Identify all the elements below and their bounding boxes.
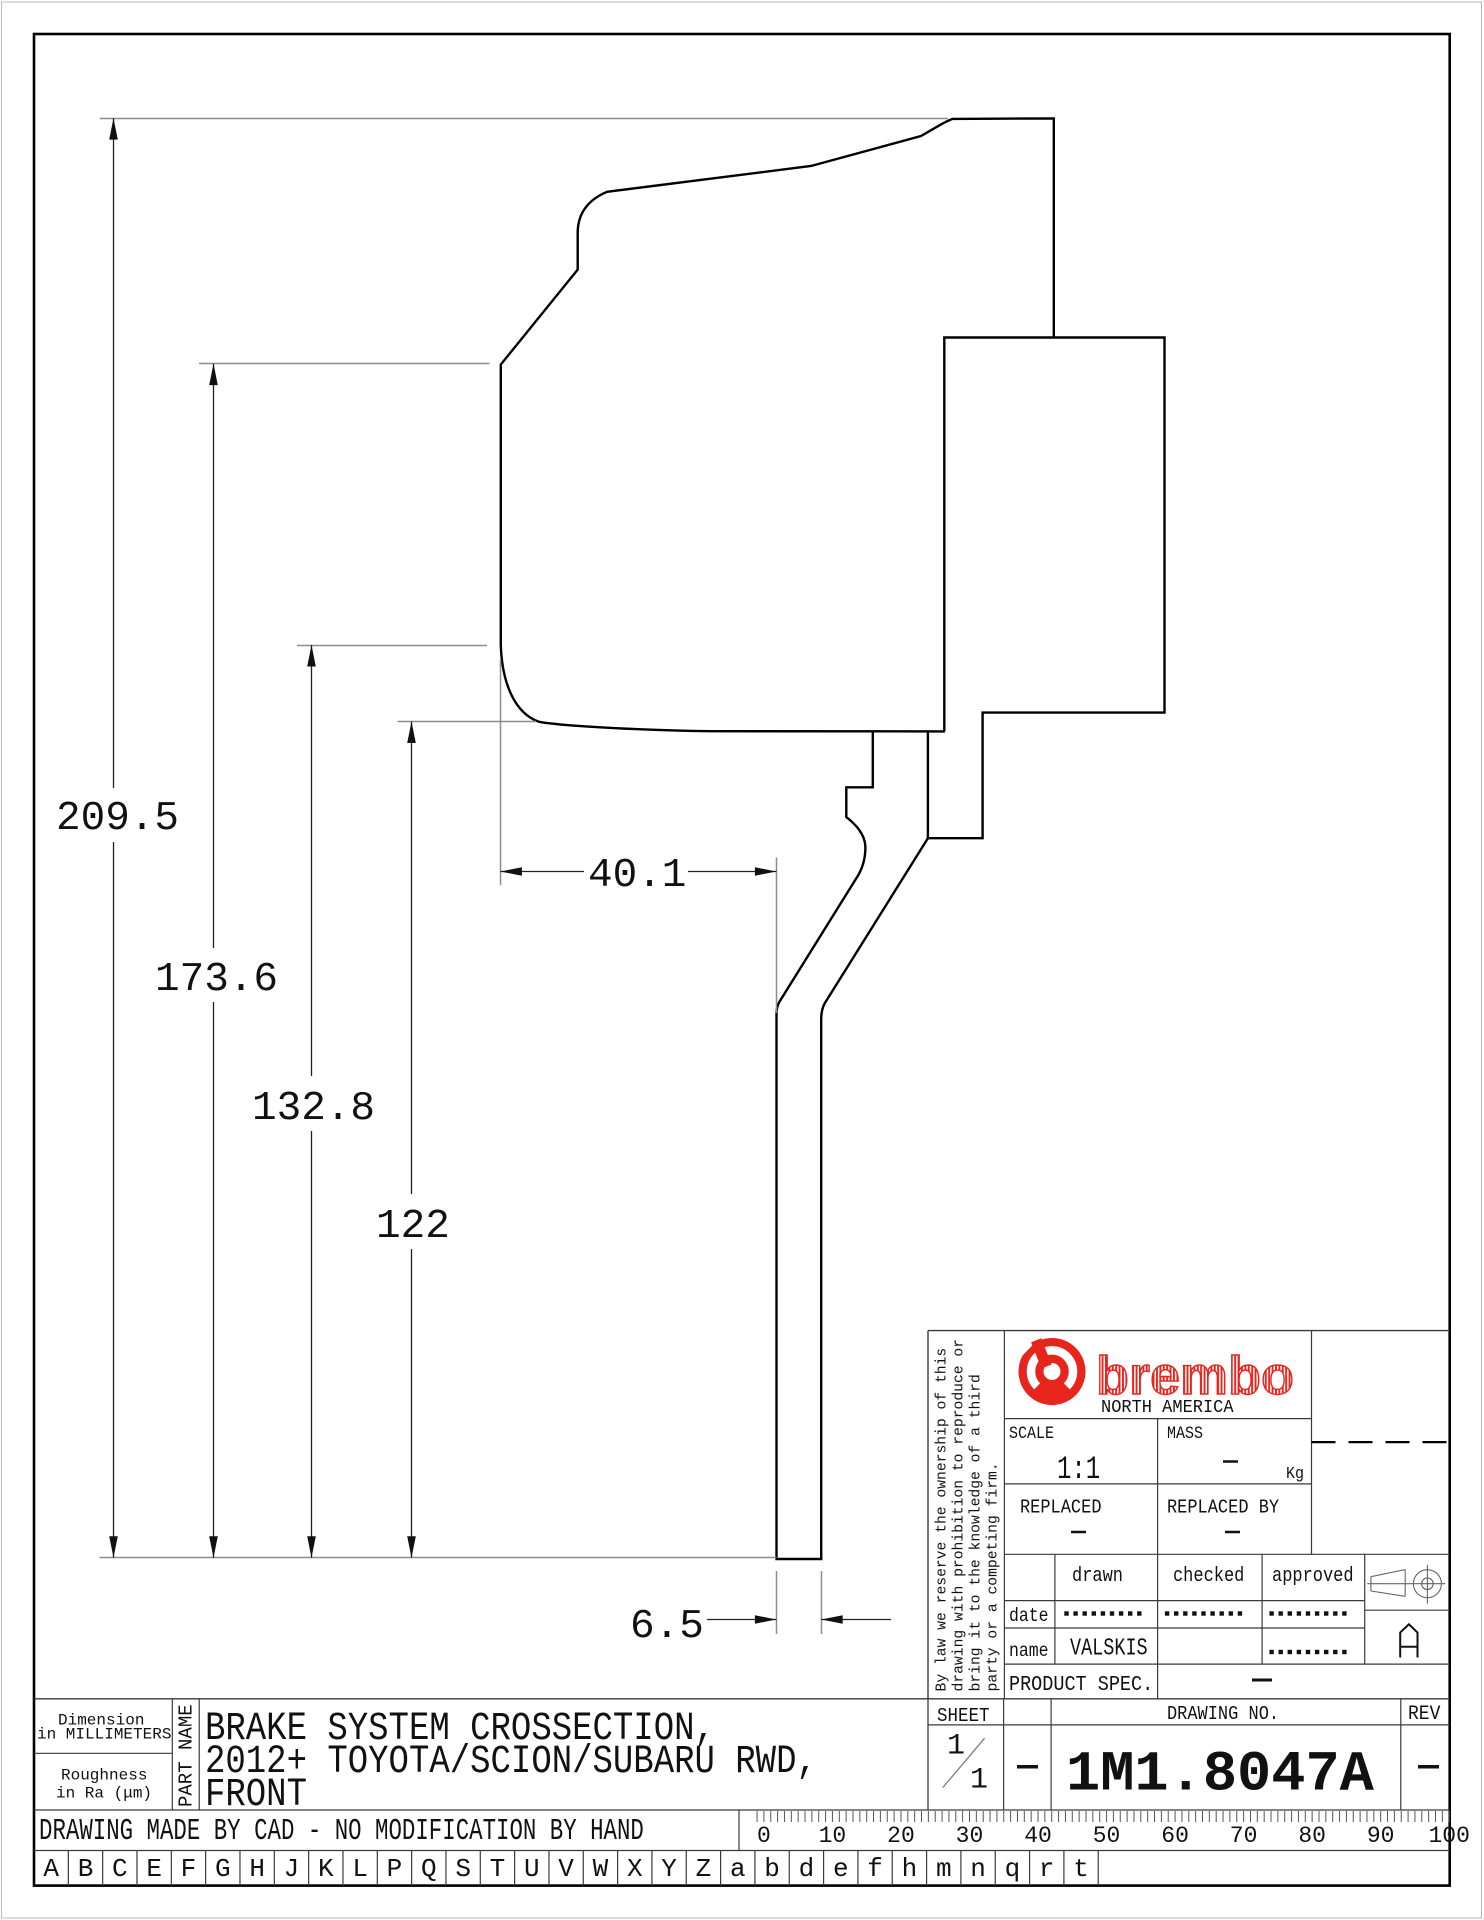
svg-text:90: 90 [1367,1823,1395,1849]
svg-text:bring it to the knowledge of a: bring it to the knowledge of a third [969,1374,985,1691]
svg-text:V: V [558,1854,574,1884]
svg-text:A: A [43,1854,59,1884]
svg-text:0: 0 [757,1823,771,1849]
svg-text:Q: Q [421,1854,437,1884]
svg-text:Z: Z [696,1854,712,1884]
svg-text:6.5: 6.5 [630,1604,704,1650]
svg-text:q: q [1005,1854,1021,1884]
svg-text:drawn: drawn [1072,1564,1123,1588]
svg-text:REPLACED BY: REPLACED BY [1167,1498,1279,1519]
svg-text:name: name [1009,1641,1049,1663]
svg-text:J: J [284,1854,300,1884]
svg-text:10: 10 [819,1823,847,1849]
svg-text:a: a [730,1854,746,1884]
svg-text:PART NAME: PART NAME [176,1704,198,1807]
svg-text:checked: checked [1173,1564,1244,1588]
svg-text:50: 50 [1093,1823,1121,1849]
svg-text:REPLACED: REPLACED [1020,1498,1102,1519]
svg-text:m: m [936,1854,952,1884]
svg-text:r: r [1039,1854,1055,1884]
svg-text:SHEET: SHEET [937,1705,989,1727]
svg-text:40.1: 40.1 [588,853,686,899]
svg-text:X: X [627,1854,643,1884]
svg-text:DRAWING MADE BY CAD - NO MODIF: DRAWING MADE BY CAD - NO MODIFICATION BY… [39,1814,644,1848]
svg-text:h: h [902,1854,918,1884]
svg-text:80: 80 [1298,1823,1326,1849]
svg-text:1M1.8047A: 1M1.8047A [1066,1744,1375,1808]
svg-text:1: 1 [947,1730,965,1764]
svg-text:F: F [181,1854,197,1884]
svg-text:60: 60 [1161,1823,1189,1849]
svg-text:Y: Y [661,1854,677,1884]
svg-text:C: C [112,1854,128,1884]
svg-text:U: U [524,1854,540,1884]
svg-text:approved: approved [1272,1564,1354,1588]
svg-text:30: 30 [956,1823,984,1849]
svg-text:e: e [833,1854,849,1884]
svg-text:L: L [352,1854,368,1884]
svg-text:in Ra (μm): in Ra (μm) [56,1784,152,1802]
svg-text:Kg: Kg [1286,1464,1304,1483]
svg-text:122: 122 [376,1204,450,1250]
svg-text:Roughness: Roughness [61,1767,147,1785]
svg-text:K: K [318,1854,334,1884]
svg-text:S: S [455,1854,471,1884]
svg-text:FRONT: FRONT [205,1773,307,1818]
svg-text:G: G [215,1854,231,1884]
svg-text:party or a competing firm.: party or a competing firm. [986,1462,1002,1691]
svg-text:P: P [387,1854,403,1884]
svg-text:40: 40 [1024,1823,1052,1849]
svg-text:T: T [490,1854,506,1884]
svg-text:date: date [1009,1606,1049,1628]
svg-text:132.8: 132.8 [252,1086,375,1132]
svg-text:MASS: MASS [1167,1424,1203,1443]
svg-text:in MILLIMETERS: in MILLIMETERS [37,1726,171,1744]
svg-text:NORTH AMERICA: NORTH AMERICA [1101,1397,1234,1418]
svg-text:173.6: 173.6 [155,957,278,1003]
svg-text:209.5: 209.5 [56,796,179,842]
svg-text:By law we reserve the ownershi: By law we reserve the ownership of this [935,1348,951,1692]
svg-text:70: 70 [1230,1823,1258,1849]
svg-text:VALSKIS: VALSKIS [1070,1635,1148,1662]
svg-text:E: E [146,1854,162,1884]
svg-text:100: 100 [1428,1823,1469,1849]
svg-text:1:1: 1:1 [1057,1451,1100,1489]
svg-text:f: f [867,1854,883,1884]
svg-text:PRODUCT SPEC.: PRODUCT SPEC. [1009,1672,1153,1697]
svg-text:H: H [249,1854,265,1884]
svg-text:t: t [1073,1854,1089,1884]
svg-text:B: B [78,1854,94,1884]
svg-text:n: n [970,1854,986,1884]
svg-text:W: W [593,1854,609,1884]
svg-text:20: 20 [887,1823,915,1849]
svg-text:drawing with prohibition to re: drawing with prohibition to reproduce or [952,1339,968,1692]
svg-text:d: d [799,1854,815,1884]
svg-text:b: b [764,1854,780,1884]
svg-text:REV: REV [1408,1702,1441,1725]
svg-text:DRAWING NO.: DRAWING NO. [1167,1704,1279,1725]
svg-text:SCALE: SCALE [1009,1424,1054,1443]
svg-text:1: 1 [970,1764,988,1798]
